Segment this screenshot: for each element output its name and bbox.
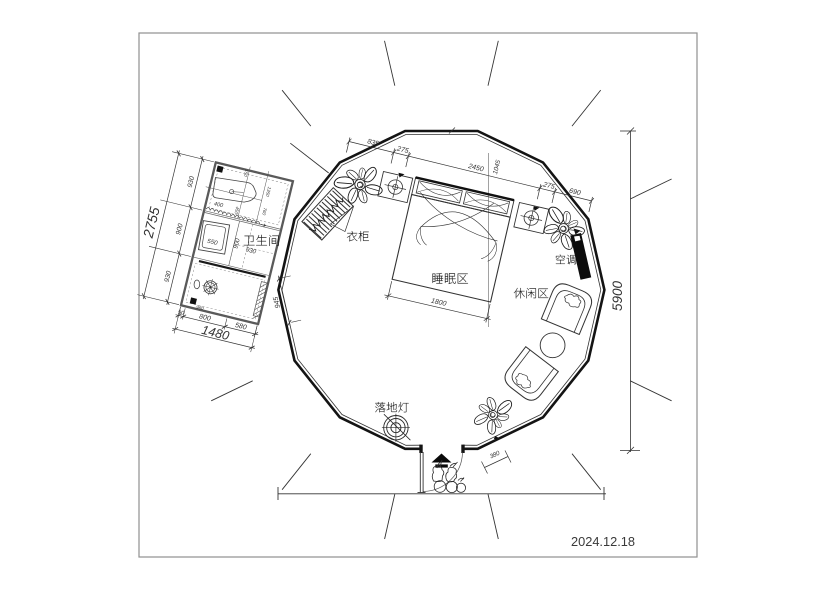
svg-text:2024.12.18: 2024.12.18: [571, 534, 635, 549]
svg-text:5900: 5900: [610, 280, 625, 311]
